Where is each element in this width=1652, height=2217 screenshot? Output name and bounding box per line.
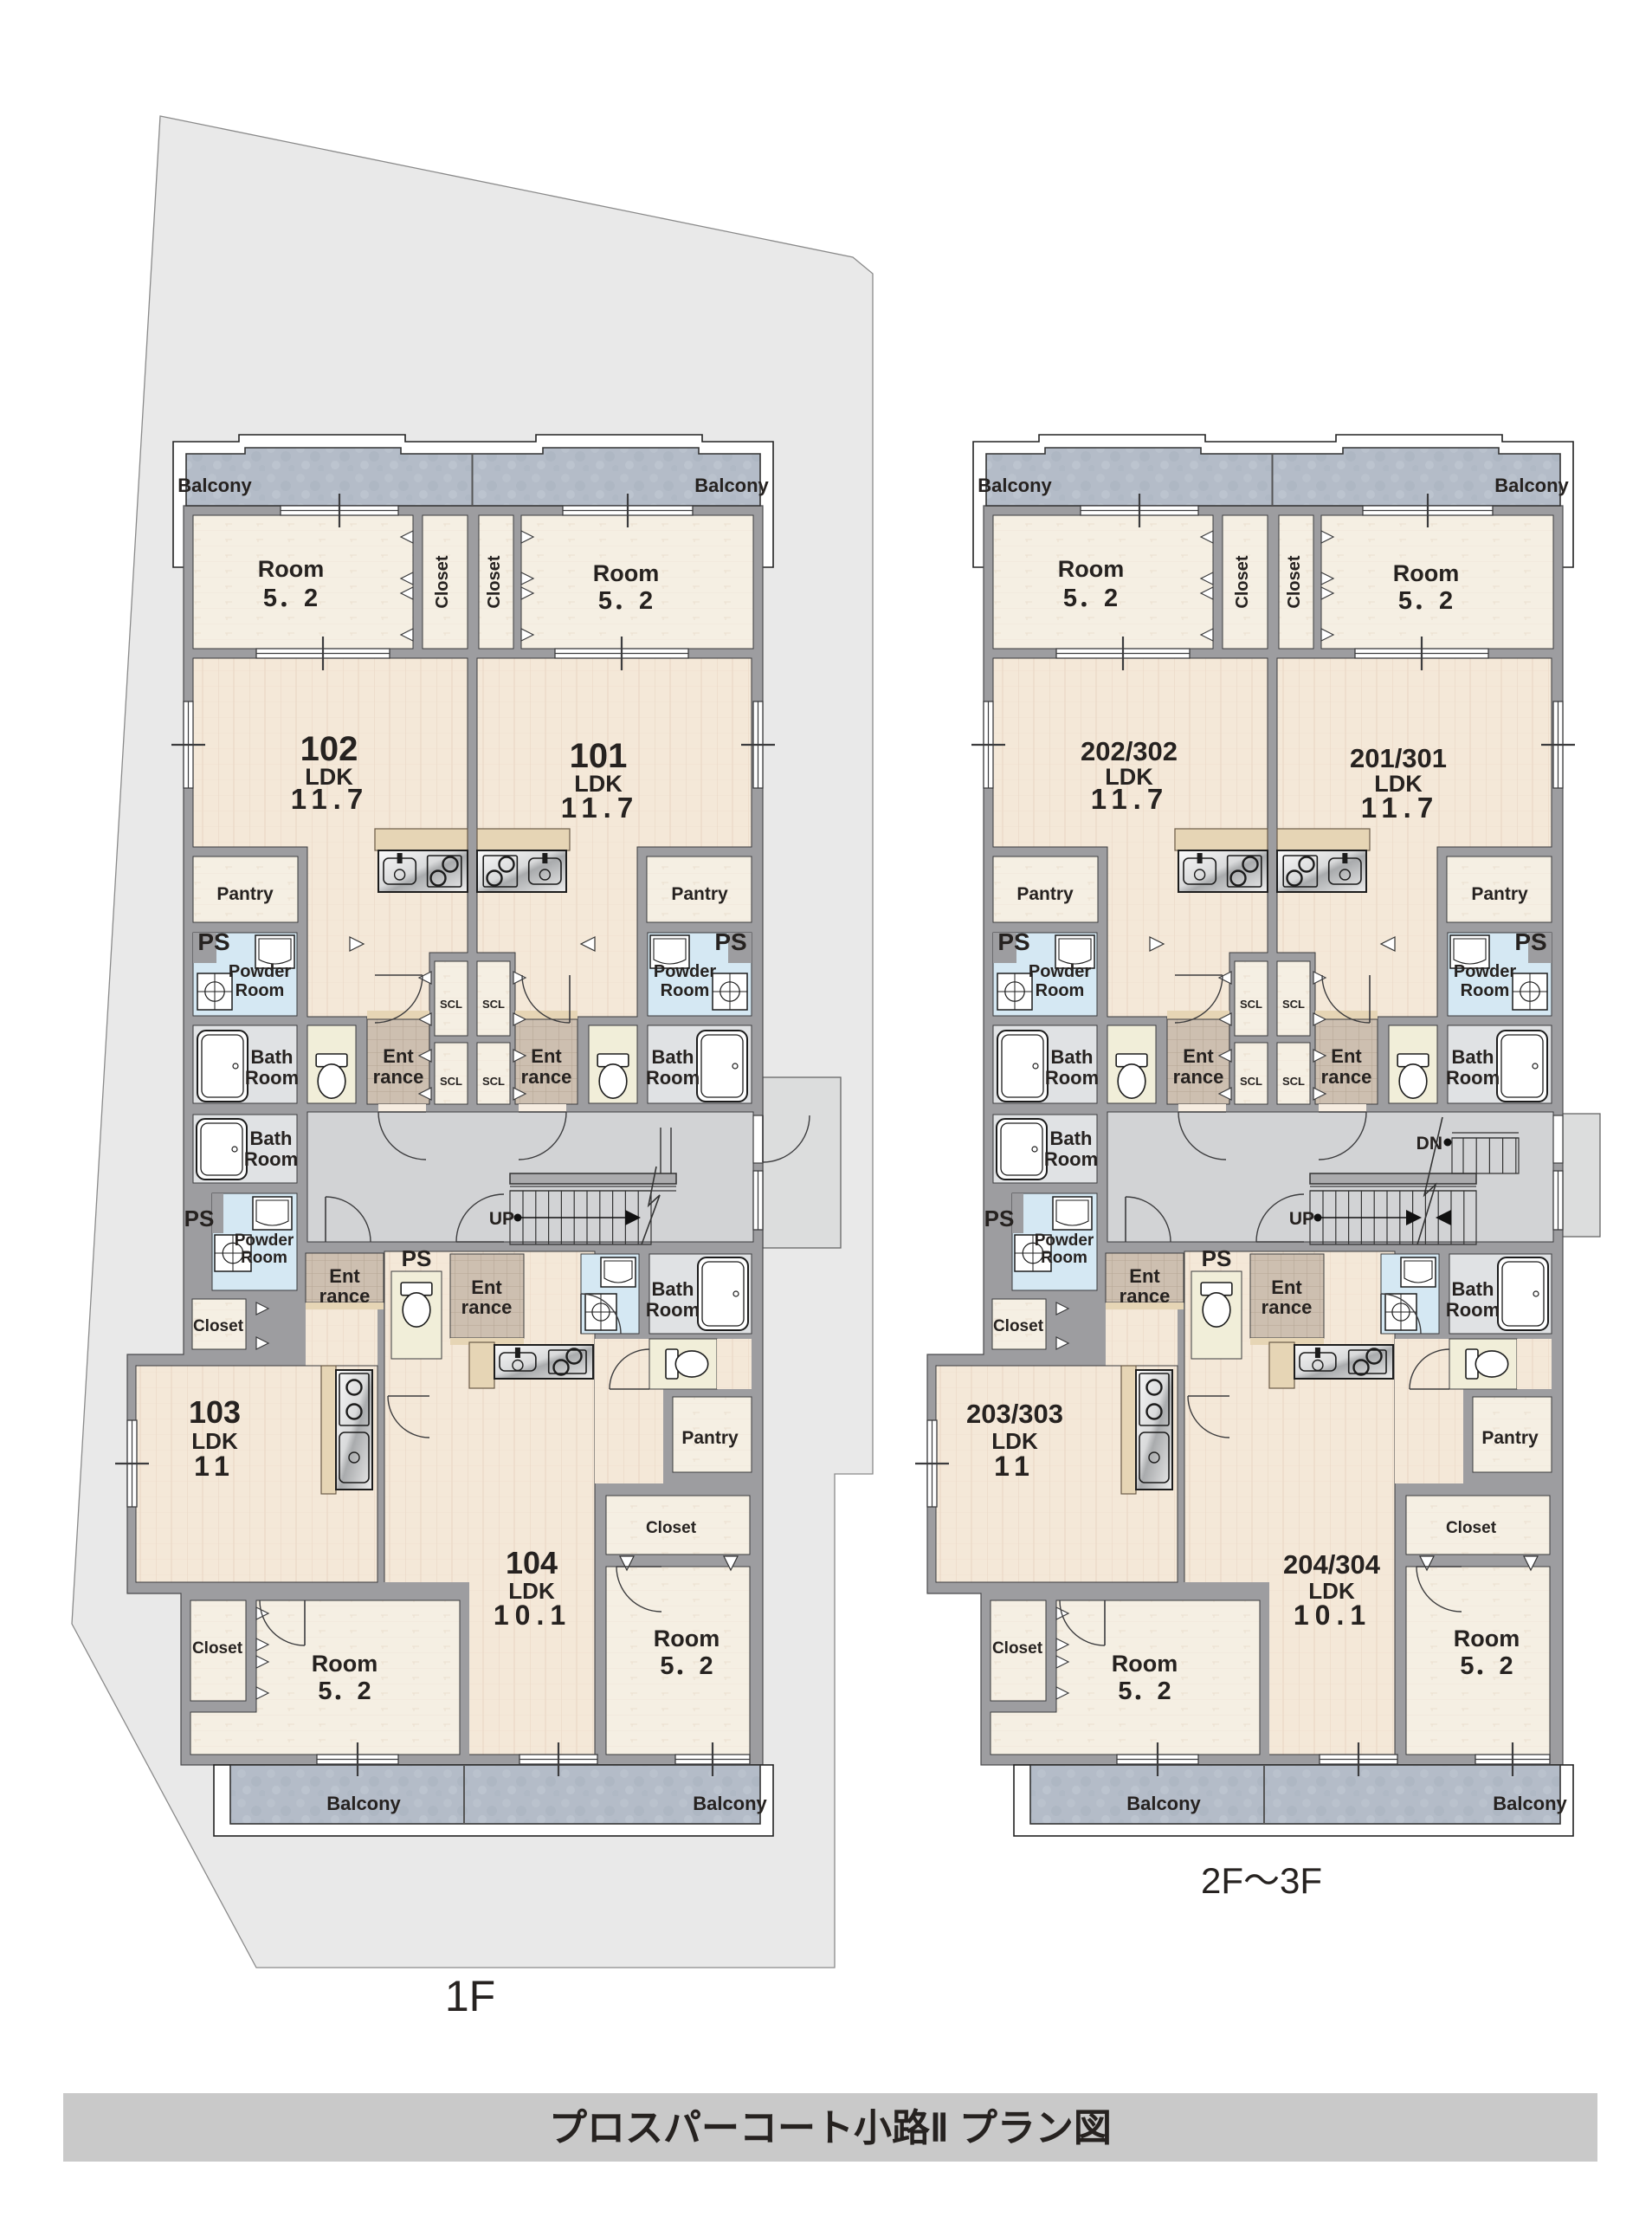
svg-text:Closet: Closet — [993, 1317, 1044, 1335]
svg-text:11.7: 11.7 — [1091, 783, 1169, 815]
svg-text:Closet: Closet — [1446, 1519, 1497, 1537]
svg-text:Room: Room — [245, 1067, 299, 1089]
svg-text:Bath: Bath — [1452, 1046, 1494, 1068]
svg-text:Powder: Powder — [229, 962, 291, 981]
svg-text:SCL: SCL — [1240, 1075, 1262, 1088]
svg-text:rance: rance — [1321, 1066, 1372, 1088]
svg-text:SCL: SCL — [440, 1075, 462, 1088]
svg-text:Room: Room — [1041, 1249, 1087, 1267]
svg-text:PS: PS — [984, 1205, 1015, 1231]
svg-text:PS: PS — [714, 928, 746, 955]
svg-text:SCL: SCL — [440, 998, 462, 1011]
svg-text:Pantry: Pantry — [216, 884, 274, 904]
svg-text:Ent: Ent — [531, 1045, 562, 1067]
svg-text:11.7: 11.7 — [561, 792, 639, 824]
svg-text:5．2: 5．2 — [1118, 1677, 1171, 1705]
svg-text:11: 11 — [994, 1451, 1036, 1482]
svg-text:SCL: SCL — [482, 998, 505, 1011]
svg-text:102: 102 — [300, 730, 358, 768]
svg-text:PS: PS — [197, 928, 229, 955]
svg-text:Pantry: Pantry — [1471, 884, 1528, 904]
svg-text:Bath: Bath — [1452, 1278, 1494, 1300]
svg-text:SCL: SCL — [1282, 1075, 1305, 1088]
svg-text:Room: Room — [646, 1299, 700, 1321]
svg-text:SCL: SCL — [1282, 998, 1305, 1011]
svg-text:Ent: Ent — [1271, 1277, 1302, 1298]
svg-text:Room: Room — [1036, 981, 1085, 1000]
svg-text:Room: Room — [1045, 1067, 1099, 1089]
svg-text:Balcony: Balcony — [177, 475, 252, 496]
svg-text:Bath: Bath — [251, 1046, 294, 1068]
svg-text:UP: UP — [1289, 1209, 1314, 1229]
svg-text:Ent: Ent — [383, 1045, 414, 1067]
svg-text:Closet: Closet — [646, 1519, 697, 1537]
svg-text:10.1: 10.1 — [1294, 1600, 1371, 1631]
svg-text:Room: Room — [1446, 1299, 1500, 1321]
svg-text:Closet: Closet — [192, 1639, 243, 1658]
svg-text:5．2: 5．2 — [263, 585, 319, 612]
svg-text:201/301: 201/301 — [1350, 743, 1447, 773]
svg-text:Balcony: Balcony — [978, 475, 1052, 496]
svg-text:rance: rance — [319, 1285, 371, 1307]
svg-text:Balcony: Balcony — [693, 1793, 767, 1814]
svg-text:Room: Room — [1044, 1148, 1098, 1170]
svg-text:Room: Room — [661, 981, 710, 1000]
svg-text:Powder: Powder — [1035, 1231, 1094, 1250]
svg-text:rance: rance — [1262, 1296, 1313, 1318]
svg-text:5．2: 5．2 — [1460, 1652, 1513, 1680]
svg-text:PS: PS — [402, 1245, 432, 1271]
svg-text:Closet: Closet — [485, 555, 504, 608]
svg-text:11: 11 — [194, 1451, 236, 1482]
svg-text:Balcony: Balcony — [1494, 475, 1569, 496]
svg-text:Balcony: Balcony — [1126, 1793, 1201, 1814]
svg-text:104: 104 — [506, 1545, 558, 1580]
svg-text:Room: Room — [1112, 1651, 1178, 1677]
svg-text:5．2: 5．2 — [1398, 587, 1454, 615]
svg-text:5．2: 5．2 — [318, 1677, 371, 1705]
svg-text:Powder: Powder — [654, 962, 716, 981]
svg-text:5．2: 5．2 — [598, 587, 654, 615]
svg-text:Ent: Ent — [471, 1277, 502, 1298]
svg-text:Room: Room — [1446, 1067, 1500, 1089]
svg-text:rance: rance — [521, 1066, 572, 1088]
svg-text:rance: rance — [1173, 1066, 1224, 1088]
svg-text:Closet: Closet — [433, 555, 452, 608]
svg-text:2F～3F: 2F～3F — [1201, 1860, 1322, 1901]
svg-text:Ent: Ent — [1331, 1045, 1362, 1067]
svg-text:Ent: Ent — [329, 1265, 360, 1287]
svg-text:Bath: Bath — [652, 1046, 694, 1068]
svg-text:Bath: Bath — [1051, 1046, 1094, 1068]
svg-text:204/304: 204/304 — [1283, 1549, 1381, 1580]
svg-text:Room: Room — [593, 560, 660, 586]
svg-text:Bath: Bath — [250, 1128, 293, 1149]
svg-text:プロスパーコート小路Ⅱ プラン図: プロスパーコート小路Ⅱ プラン図 — [549, 2107, 1112, 2149]
svg-text:Powder: Powder — [1029, 962, 1091, 981]
svg-text:Room: Room — [1393, 560, 1460, 586]
svg-text:Ent: Ent — [1183, 1045, 1214, 1067]
svg-text:Ent: Ent — [1129, 1265, 1160, 1287]
svg-text:Room: Room — [646, 1067, 700, 1089]
svg-text:Closet: Closet — [1285, 555, 1304, 608]
svg-text:5．2: 5．2 — [660, 1652, 713, 1680]
svg-text:Pantry: Pantry — [1481, 1428, 1539, 1448]
svg-text:203/303: 203/303 — [966, 1399, 1063, 1429]
svg-text:Room: Room — [244, 1148, 298, 1170]
svg-text:5．2: 5．2 — [1063, 585, 1119, 612]
svg-text:103: 103 — [189, 1394, 241, 1430]
svg-text:Closet: Closet — [1233, 555, 1252, 608]
svg-text:Balcony: Balcony — [694, 475, 769, 496]
svg-text:Balcony: Balcony — [1493, 1793, 1567, 1814]
svg-text:Room: Room — [258, 556, 325, 582]
svg-text:Room: Room — [1461, 981, 1510, 1000]
svg-text:11.7: 11.7 — [291, 783, 369, 815]
svg-text:1F: 1F — [445, 1972, 495, 2020]
svg-text:Powder: Powder — [235, 1231, 294, 1250]
svg-text:Room: Room — [654, 1626, 720, 1651]
svg-text:UP: UP — [489, 1209, 514, 1229]
svg-text:Balcony: Balcony — [326, 1793, 401, 1814]
svg-text:11.7: 11.7 — [1361, 792, 1439, 824]
svg-text:rance: rance — [1120, 1285, 1171, 1307]
svg-text:Room: Room — [1058, 556, 1125, 582]
svg-text:PS: PS — [997, 928, 1029, 955]
svg-text:202/302: 202/302 — [1081, 736, 1178, 766]
svg-text:Room: Room — [236, 981, 285, 1000]
svg-text:Pantry: Pantry — [671, 884, 728, 904]
svg-text:Bath: Bath — [1050, 1128, 1093, 1149]
svg-text:Pantry: Pantry — [1016, 884, 1074, 904]
svg-text:PS: PS — [1202, 1245, 1232, 1271]
svg-text:rance: rance — [373, 1066, 424, 1088]
svg-text:rance: rance — [461, 1296, 513, 1318]
svg-text:Room: Room — [241, 1249, 287, 1267]
svg-text:Room: Room — [1454, 1626, 1520, 1651]
svg-text:Bath: Bath — [652, 1278, 694, 1300]
svg-text:PS: PS — [184, 1205, 215, 1231]
svg-text:Closet: Closet — [193, 1317, 244, 1335]
svg-text:SCL: SCL — [1240, 998, 1262, 1011]
svg-text:Room: Room — [312, 1651, 378, 1677]
svg-text:Closet: Closet — [992, 1639, 1043, 1658]
svg-text:Pantry: Pantry — [681, 1428, 739, 1448]
svg-text:Powder: Powder — [1454, 962, 1516, 981]
svg-text:SCL: SCL — [482, 1075, 505, 1088]
svg-text:10.1: 10.1 — [494, 1600, 571, 1631]
svg-text:PS: PS — [1514, 928, 1546, 955]
svg-text:101: 101 — [570, 737, 628, 775]
